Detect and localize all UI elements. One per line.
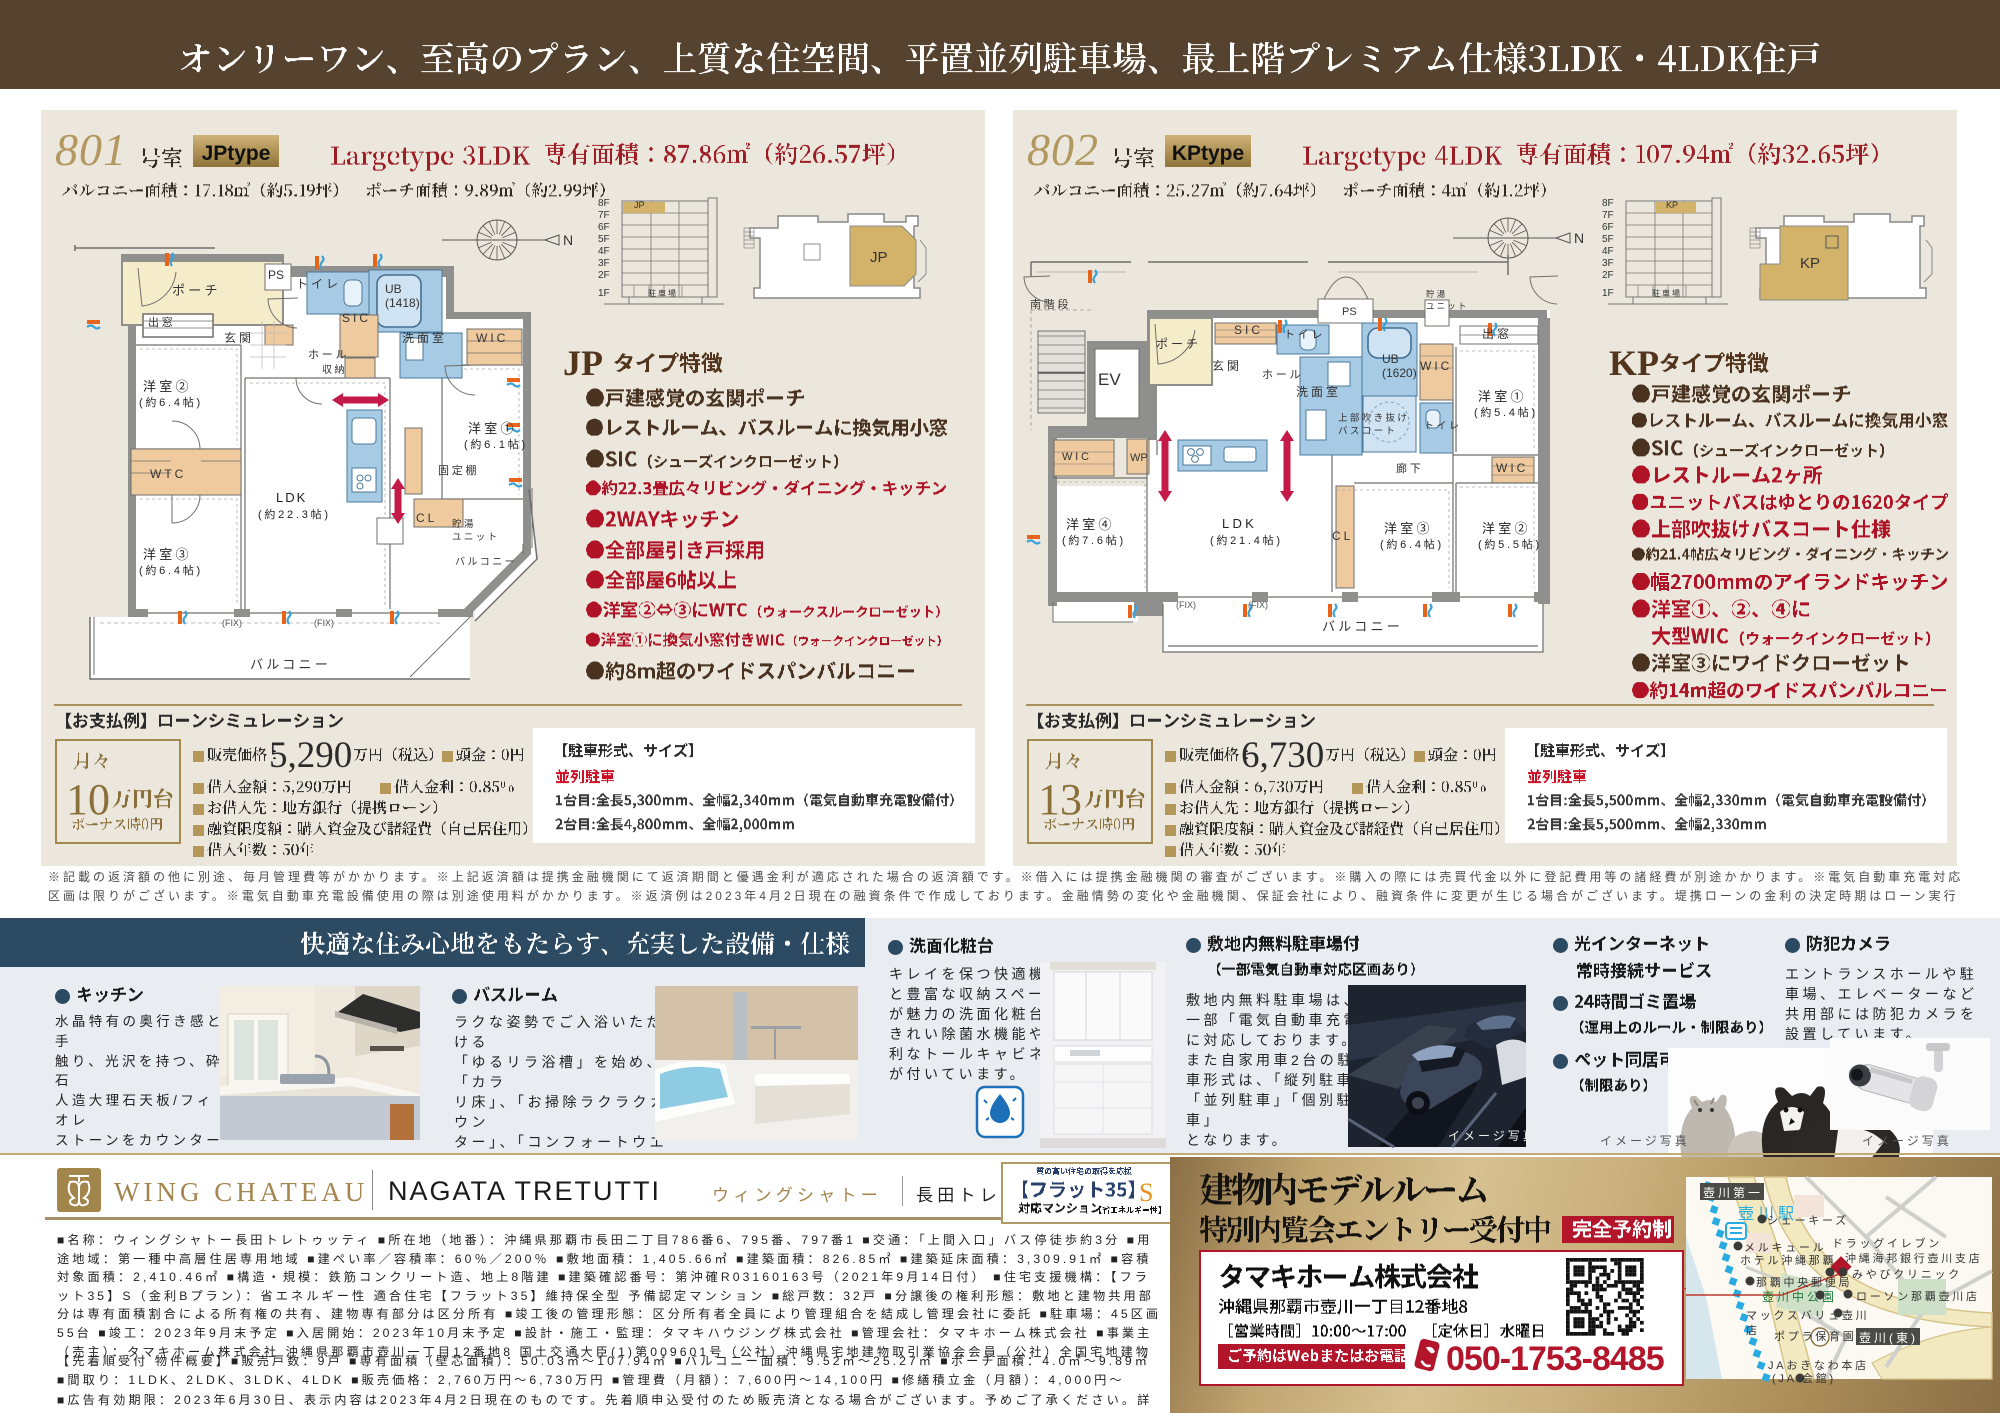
svg-text:JP: JP bbox=[870, 249, 888, 266]
svg-text:N: N bbox=[1574, 230, 1584, 246]
svg-text:KP: KP bbox=[1800, 255, 1820, 272]
